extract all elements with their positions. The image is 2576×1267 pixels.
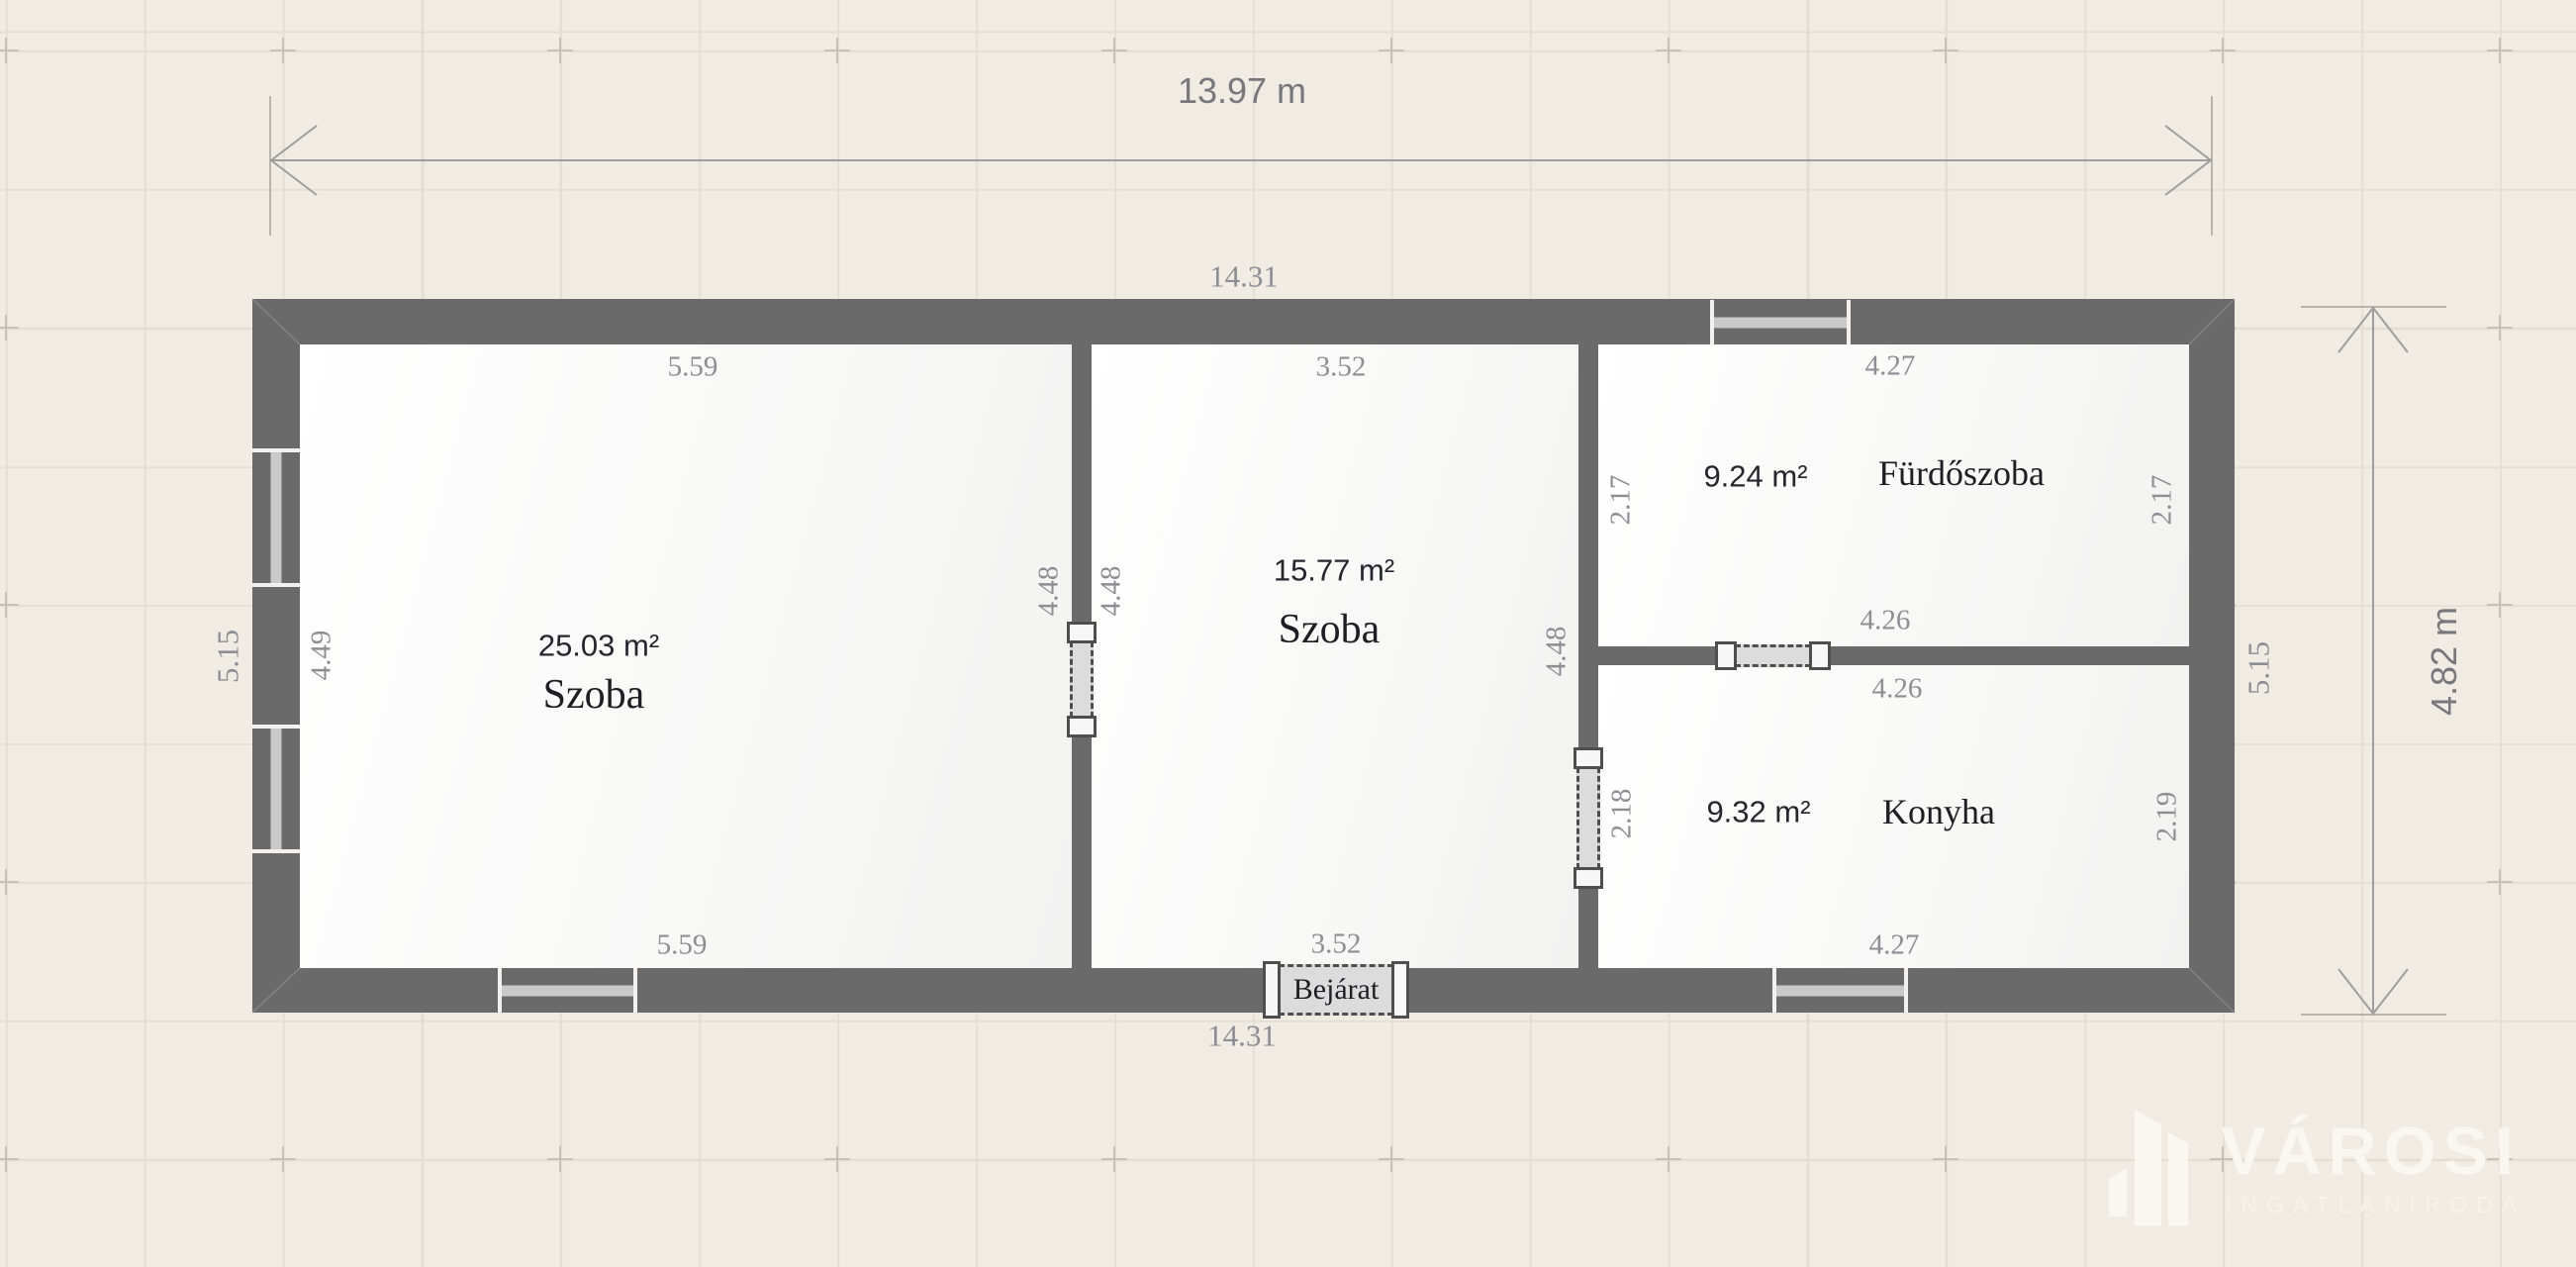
grid-tick (2487, 38, 2513, 63)
room-area: 15.77 m² (1274, 555, 1394, 586)
door-szoba-divider (1067, 622, 1097, 737)
logo-wordmark: VÁROSI (2221, 1113, 2521, 1190)
grid-tick (824, 38, 850, 63)
room-dim-bottom: 4.27 (1869, 931, 1920, 960)
grid-tick (0, 869, 19, 895)
window-glass (271, 729, 282, 849)
total-height-label: 4.82 m (2427, 607, 2462, 716)
room-dim-right: 2.19 (2153, 792, 2182, 842)
door-post (1067, 716, 1097, 737)
door-post (1391, 961, 1409, 1019)
door-post (1574, 747, 1603, 769)
room-area: 25.03 m² (538, 631, 659, 661)
total-width-label: 13.97 m (1178, 73, 1306, 109)
outer-dim-left: 5.15 (213, 630, 243, 683)
city-buildings-icon (2109, 1110, 2188, 1225)
arrow-up-icon (2338, 308, 2408, 352)
arrow-right-icon (2165, 126, 2211, 195)
window-left-lower (252, 725, 300, 853)
grid-tick (2210, 38, 2236, 63)
grid-tick (1933, 38, 1958, 63)
logo-subtitle: INGATLANIRODA (2226, 1192, 2526, 1218)
door-konyha (1574, 747, 1603, 889)
door-post (1574, 867, 1603, 889)
room-dim-right: 4.48 (1035, 566, 1064, 617)
entrance-label: Bejárat (1293, 975, 1380, 1005)
wall-right (2189, 299, 2235, 1013)
door-post (1067, 622, 1097, 643)
window-glass (1776, 985, 1904, 996)
outer-dim-top: 14.31 (1209, 261, 1279, 292)
door-leaf (1735, 644, 1811, 667)
grid-tick (1379, 1146, 1404, 1172)
room-furdoszoba-floor (1598, 344, 2189, 646)
wall-top (252, 299, 2235, 344)
room-dim-left: 4.48 (1097, 566, 1126, 617)
room-dim-bottom: 5.59 (657, 931, 708, 960)
room-dim-top: 5.59 (668, 353, 718, 382)
grid-tick (2487, 869, 2513, 895)
wall-interior-bath-kitchen-divider (1598, 646, 2189, 665)
grid-tick (547, 1146, 573, 1172)
grid-tick (1379, 38, 1404, 63)
room-dim-left: 2.17 (1607, 475, 1636, 526)
room-name: Fürdőszoba (1878, 455, 2045, 491)
grid-tick (270, 1146, 296, 1172)
arrow-left-icon (271, 126, 317, 195)
room-dim-top: 4.26 (1872, 675, 1923, 704)
outer-dim-right: 5.15 (2243, 641, 2274, 695)
door-leaf (1070, 641, 1094, 718)
window-glass (271, 452, 282, 583)
window-bottom-konyha (1772, 968, 1908, 1013)
grid-tick (2487, 315, 2513, 341)
grid-tick (547, 38, 573, 63)
room-dim-bottom: 4.26 (1860, 607, 1911, 635)
grid-tick (1101, 1146, 1127, 1172)
grid-tick (1933, 1146, 1958, 1172)
room-szoba-large-floor (300, 344, 1072, 968)
outer-dim-bottom: 14.31 (1207, 1021, 1277, 1051)
room-dim-right: 2.17 (2148, 475, 2177, 526)
room-dim-right: 4.48 (1543, 627, 1572, 677)
grid-tick (0, 38, 19, 63)
room-name: Szoba (1279, 609, 1381, 650)
grid-tick (824, 1146, 850, 1172)
window-left-upper (252, 448, 300, 587)
grid-tick (0, 1146, 19, 1172)
room-dim-left: 4.49 (308, 631, 336, 681)
door-post (1263, 961, 1281, 1019)
door-post (1809, 641, 1831, 670)
arrow-down-icon (2338, 969, 2408, 1014)
door-leaf (1576, 767, 1600, 869)
grid-tick (270, 38, 296, 63)
window-bottom-szoba (498, 968, 637, 1013)
room-name: Konyha (1882, 794, 1995, 829)
room-dim-left: 2.18 (1608, 789, 1637, 839)
room-area: 9.32 m² (1706, 797, 1810, 828)
grid-tick (1101, 38, 1127, 63)
wall-left (252, 299, 300, 1013)
room-dim-bottom: 3.52 (1311, 930, 1362, 959)
grid-tick (1656, 38, 1681, 63)
room-area: 9.24 m² (1703, 461, 1807, 492)
room-dim-top: 3.52 (1316, 353, 1367, 382)
grid-tick (0, 592, 19, 618)
door-furdoszoba (1715, 641, 1831, 670)
window-glass (1714, 317, 1847, 328)
grid-tick (2487, 592, 2513, 618)
window-top-furdoszoba (1710, 300, 1851, 344)
room-szoba-small-floor (1092, 344, 1578, 968)
door-post (1715, 641, 1737, 670)
grid-tick (0, 315, 19, 341)
room-name: Szoba (543, 674, 645, 716)
grid-tick (1656, 1146, 1681, 1172)
window-glass (502, 985, 633, 996)
room-dim-top: 4.27 (1865, 352, 1916, 381)
floor-plan-canvas: Bejárat (0, 0, 2576, 1267)
